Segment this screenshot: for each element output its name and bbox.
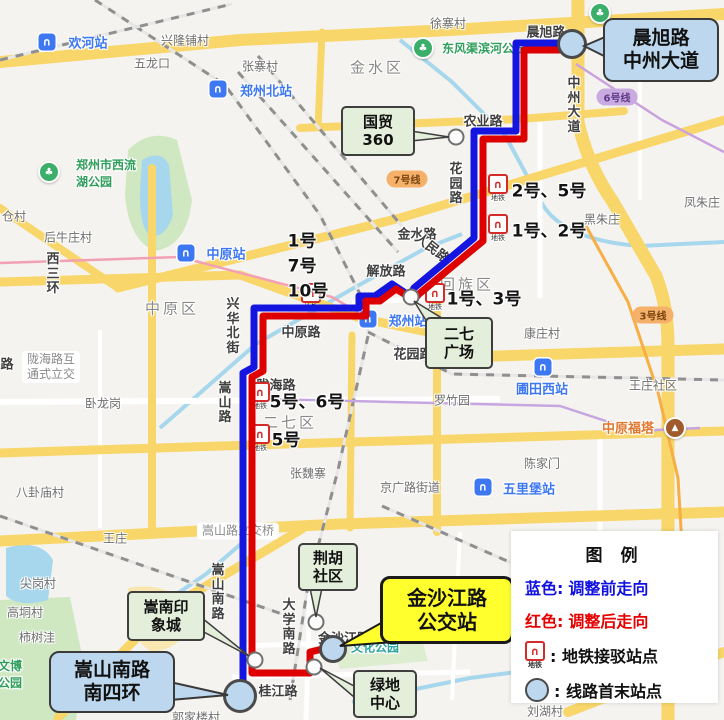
terminal-station-icon	[525, 678, 549, 702]
legend-row-blue: 蓝色: 调整前走向	[525, 575, 718, 599]
legend-row-terminal: : 线路首末站点	[525, 678, 718, 702]
metro-icon-sublabel: 地铁	[528, 662, 542, 669]
callout-erqi-guangchang: 二七广场	[425, 317, 493, 369]
metro-transfer-icon: ∩ 地铁	[525, 641, 545, 669]
callout-songshannanlu-nansihuan: 嵩山南路南四环	[49, 651, 175, 713]
callout-songnan-yinxiangcheng: 嵩南印象城	[127, 591, 205, 641]
legend-red-text: 调整后走向	[568, 608, 648, 632]
legend-red-prefix: 红色:	[525, 608, 563, 632]
legend-blue-text: 调整前走向	[568, 575, 648, 599]
legend-row-red: 红色: 调整后走向	[525, 608, 718, 632]
legend-row-metro: ∩ 地铁 : 地铁接驳站点	[525, 641, 718, 669]
callout-jinshajianglu-bus-stop: 金沙江路公交站	[380, 576, 514, 644]
legend-title: 图 例	[511, 541, 718, 566]
metro-glyph-icon: ∩	[525, 641, 545, 661]
legend: 图 例 蓝色: 调整前走向 红色: 调整后走向 ∩ 地铁 : 地铁接驳站点 : …	[511, 531, 718, 703]
legend-terminal-text: : 线路首末站点	[554, 678, 662, 702]
callout-guomao-360: 国贸360	[341, 106, 415, 156]
legend-blue-prefix: 蓝色:	[525, 575, 563, 599]
map-canvas: 兴隆铺村五龙口张寨村徐寨村黑朱庄凤朱庄后牛庄村仓村康庄村王庄社区罗竹园陈家门张魏…	[0, 0, 724, 720]
callout-lvdi-zhongxin: 绿地中心	[353, 670, 417, 718]
callout-chenxu-zhongzhou: 晨旭路中州大道	[603, 18, 719, 82]
callout-jinghu-shequ: 荆胡社区	[298, 543, 358, 591]
legend-metro-text: : 地铁接驳站点	[550, 643, 658, 667]
